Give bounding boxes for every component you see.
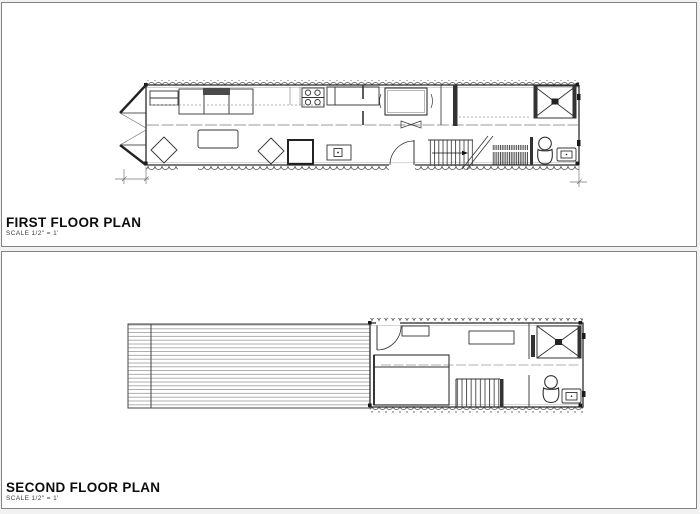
first-floor-panel: FIRST FLOOR PLAN SCALE 1/2" = 1' bbox=[1, 2, 697, 247]
roof-deck bbox=[128, 324, 370, 408]
bathroom-wall bbox=[530, 137, 533, 165]
second-floor-scale-note: SCALE 1/2" = 1' bbox=[6, 495, 160, 503]
second-floor-title-block: SECOND FLOOR PLAN SCALE 1/2" = 1' bbox=[6, 480, 160, 503]
living-area bbox=[150, 88, 379, 164]
kitchen bbox=[288, 87, 379, 164]
sofa bbox=[179, 88, 253, 114]
fan-symbol-icon bbox=[401, 121, 421, 128]
corrugated-wall-bottom bbox=[415, 166, 579, 171]
first-floor-scale-note: SCALE 1/2" = 1' bbox=[6, 230, 141, 238]
corrugated-wall-top bbox=[146, 80, 579, 85]
prow-doors bbox=[120, 85, 146, 165]
bedroom bbox=[363, 85, 529, 128]
second-floor-plan-drawing bbox=[2, 252, 696, 508]
stairs bbox=[456, 379, 504, 408]
bed bbox=[380, 88, 433, 115]
sink-icon bbox=[557, 148, 576, 161]
drawing-sheet: { "sheet": { "background": "#f2f2f2", "p… bbox=[0, 0, 700, 514]
thick-wall bbox=[453, 85, 458, 126]
closet-hatching bbox=[492, 145, 528, 165]
cabinet bbox=[150, 91, 178, 105]
stove-icon bbox=[302, 88, 324, 107]
first-floor-title: FIRST FLOOR PLAN bbox=[6, 215, 141, 230]
prep-table bbox=[327, 145, 351, 160]
diamond-table bbox=[151, 137, 177, 163]
second-floor-panel: SECOND FLOOR PLAN SCALE 1/2" = 1' bbox=[1, 251, 697, 509]
skylight-deck bbox=[534, 86, 576, 118]
corrugated-wall-bottom bbox=[370, 408, 583, 413]
second-floor-title: SECOND FLOOR PLAN bbox=[6, 480, 160, 495]
corrugated-wall-top bbox=[370, 318, 583, 323]
coffee-table bbox=[198, 130, 238, 148]
kitchen-island bbox=[288, 140, 313, 164]
first-floor-plan-drawing bbox=[2, 3, 696, 246]
corrugated-wall-bottom bbox=[198, 166, 389, 171]
diamond-table bbox=[258, 138, 284, 164]
corrugated-wall-bottom bbox=[146, 166, 178, 171]
entry-door bbox=[390, 140, 414, 165]
kitchen-counter bbox=[327, 87, 379, 105]
first-floor-title-block: FIRST FLOOR PLAN SCALE 1/2" = 1' bbox=[6, 215, 141, 238]
bathroom bbox=[530, 137, 576, 165]
shower-wall bbox=[531, 335, 535, 357]
stairs bbox=[428, 136, 493, 169]
toilet-icon bbox=[538, 137, 553, 164]
